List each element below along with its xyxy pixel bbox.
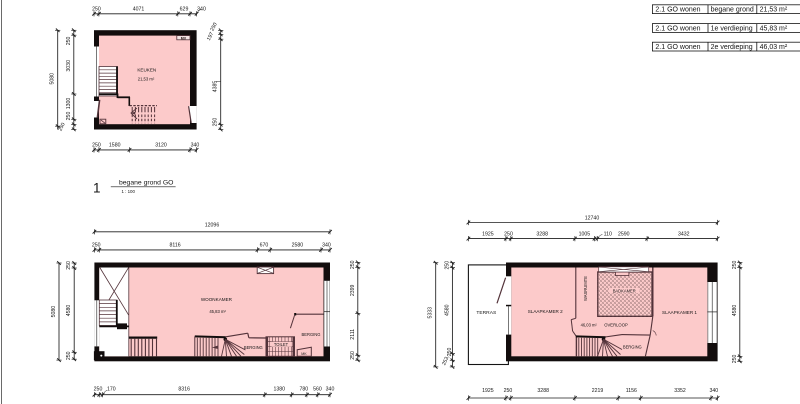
svg-text:250: 250 (66, 261, 72, 270)
svg-text:3288: 3288 (536, 231, 548, 237)
svg-text:45,83 m²: 45,83 m² (760, 25, 788, 32)
svg-text:250: 250 (92, 143, 101, 149)
svg-text:2.1 GO wonen: 2.1 GO wonen (655, 44, 700, 51)
svg-text:2.1 GO wonen: 2.1 GO wonen (655, 25, 700, 32)
svg-text:WOONKAMER: WOONKAMER (201, 297, 233, 302)
svg-text:250: 250 (732, 354, 738, 363)
svg-text:340: 340 (197, 7, 206, 13)
svg-text:780: 780 (299, 386, 308, 392)
svg-text:250: 250 (66, 112, 72, 121)
svg-text:1300: 1300 (66, 98, 72, 110)
svg-text:46,03 m²: 46,03 m² (760, 44, 788, 51)
svg-text:MK: MK (301, 352, 307, 356)
svg-text:4580: 4580 (66, 305, 72, 317)
svg-text:BERGING: BERGING (302, 332, 321, 337)
svg-text:SLAAPKAMER 1: SLAAPKAMER 1 (662, 310, 697, 315)
svg-text:8116: 8116 (170, 243, 181, 249)
svg-text:250: 250 (92, 243, 101, 249)
svg-text:12740: 12740 (585, 215, 600, 221)
svg-text:560: 560 (313, 386, 322, 392)
svg-text:TOILET: TOILET (274, 342, 289, 347)
svg-text:3288: 3288 (537, 388, 549, 394)
svg-text:1e verdieping: 1e verdieping (711, 25, 753, 32)
svg-text:12096: 12096 (205, 223, 220, 229)
svg-text:2580: 2580 (292, 243, 304, 249)
svg-text:250: 250 (444, 261, 450, 270)
svg-text:WASRUIMTE: WASRUIMTE (583, 276, 588, 301)
svg-text:5333: 5333 (428, 307, 434, 319)
svg-text:670: 670 (260, 243, 269, 249)
svg-text:KEUKEN: KEUKEN (137, 68, 156, 73)
svg-text:1925: 1925 (482, 231, 494, 237)
svg-text:250: 250 (66, 351, 72, 360)
svg-text:OVERLOOP: OVERLOOP (604, 323, 628, 328)
svg-text:110: 110 (604, 231, 612, 237)
svg-text:3120: 3120 (155, 143, 167, 149)
svg-text:3352: 3352 (674, 388, 686, 394)
svg-text:1156: 1156 (626, 388, 637, 394)
svg-text:2.1 GO wonen: 2.1 GO wonen (655, 7, 700, 14)
svg-text:21,53 m²: 21,53 m² (760, 7, 788, 14)
svg-text:2399: 2399 (350, 285, 356, 297)
svg-text:5080: 5080 (51, 306, 57, 318)
svg-text:2590: 2590 (618, 231, 630, 237)
svg-text:629: 629 (180, 7, 189, 13)
svg-text:begane grond GO: begane grond GO (119, 180, 173, 187)
svg-text:SLAAPKAMER 2: SLAAPKAMER 2 (528, 309, 563, 314)
svg-text:5080: 5080 (50, 73, 56, 85)
svg-text:TERRAS: TERRAS (476, 310, 497, 316)
svg-text:1 : 100: 1 : 100 (122, 189, 136, 194)
svg-text:340: 340 (322, 243, 331, 249)
svg-text:8316: 8316 (178, 386, 190, 392)
svg-text:3030: 3030 (66, 60, 72, 72)
svg-text:1: 1 (93, 181, 101, 196)
svg-text:340: 340 (191, 143, 200, 149)
svg-text:250: 250 (92, 7, 101, 13)
svg-text:3432: 3432 (678, 231, 690, 237)
svg-text:46,03 m²: 46,03 m² (581, 323, 598, 328)
svg-text:4385: 4385 (213, 81, 219, 93)
svg-text:BADKAMER: BADKAMER (613, 288, 636, 293)
svg-text:170: 170 (107, 386, 116, 392)
svg-text:250: 250 (66, 36, 72, 45)
svg-text:250: 250 (504, 231, 513, 237)
svg-text:250: 250 (732, 260, 738, 269)
svg-text:1005: 1005 (579, 231, 591, 237)
svg-text:250: 250 (94, 386, 103, 392)
svg-text:2111: 2111 (350, 329, 356, 340)
svg-text:4580: 4580 (732, 305, 738, 317)
svg-text:250: 250 (447, 348, 453, 357)
svg-text:MV: MV (181, 36, 187, 40)
svg-text:begane grond: begane grond (711, 7, 754, 14)
svg-text:BERGING: BERGING (244, 345, 263, 350)
svg-text:1380: 1380 (274, 386, 286, 392)
svg-text:1580: 1580 (109, 143, 121, 149)
svg-text:1925: 1925 (482, 388, 494, 394)
svg-text:45,83 m²: 45,83 m² (209, 309, 226, 314)
svg-text:250: 250 (213, 118, 219, 127)
svg-text:250: 250 (350, 351, 356, 360)
svg-text:340: 340 (709, 388, 718, 394)
svg-text:21,53 m²: 21,53 m² (138, 77, 155, 82)
svg-text:2e verdieping: 2e verdieping (711, 44, 753, 51)
svg-text:250: 250 (504, 388, 513, 394)
svg-text:250: 250 (350, 260, 356, 269)
svg-text:4580: 4580 (444, 304, 450, 316)
svg-text:340: 340 (326, 386, 335, 392)
svg-text:BERGING: BERGING (623, 344, 642, 349)
svg-text:2219: 2219 (592, 388, 604, 394)
svg-text:4071: 4071 (133, 7, 145, 13)
